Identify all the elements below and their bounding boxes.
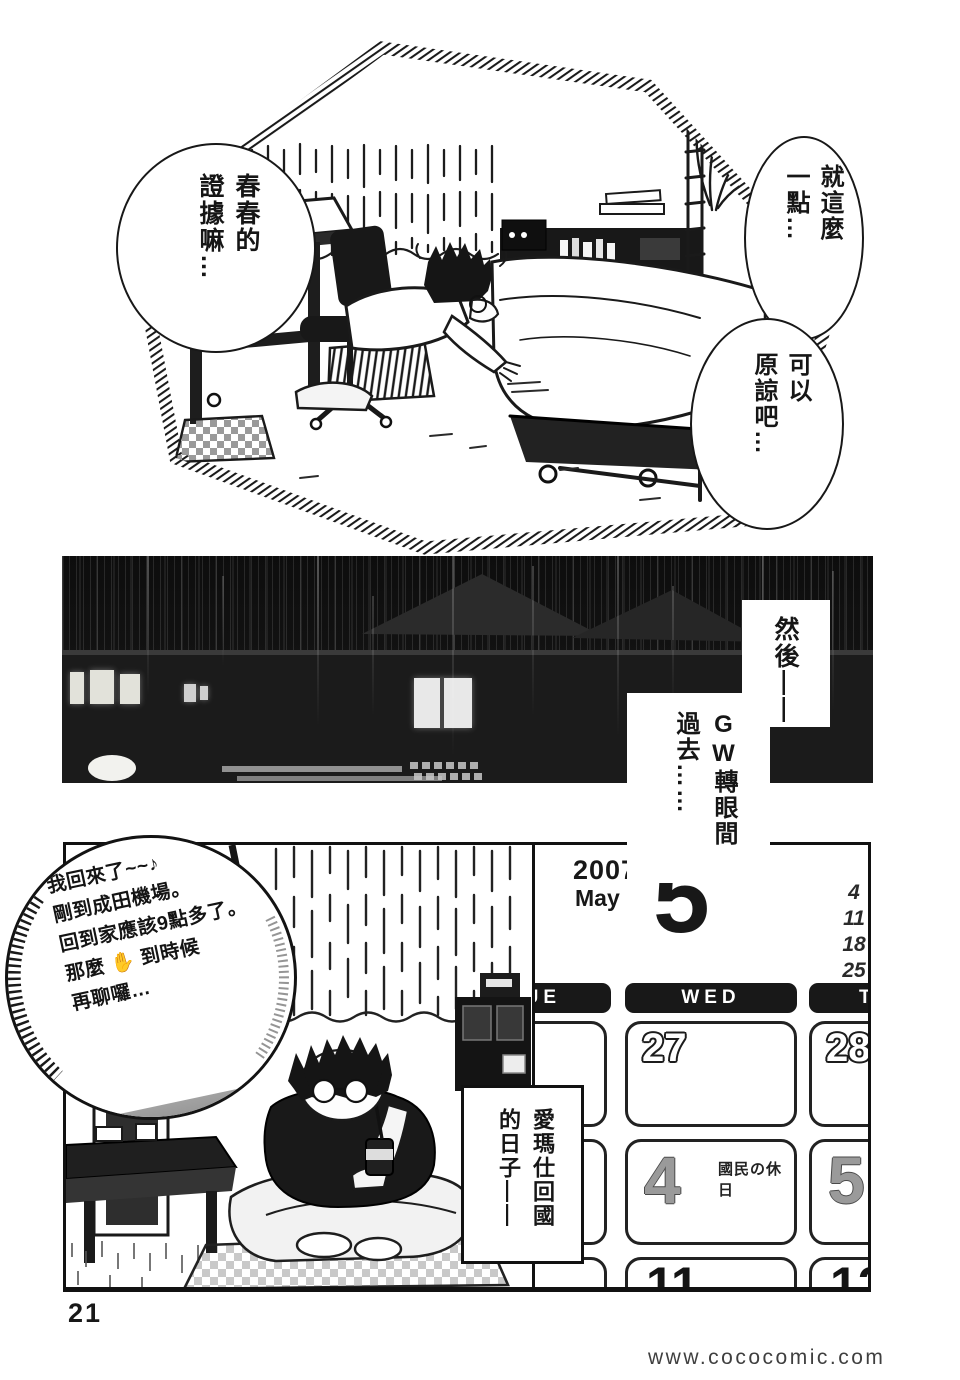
lit-window [90, 670, 114, 704]
watermark: www.cococomic.com [648, 1346, 885, 1370]
rug [175, 416, 274, 462]
stereo-icon [502, 220, 546, 250]
calendar-side-number: 18 [837, 933, 868, 957]
day-number: 11 [646, 1256, 699, 1287]
calendar-cell: 28 [809, 1021, 868, 1127]
caption-hermes-return: 愛瑪仕回國 的日子—— [461, 1085, 584, 1264]
speech-bubble-just-this-much: 就這麼 一點… [744, 136, 864, 340]
page-number: 21 [68, 1298, 102, 1329]
shelf-unit [455, 973, 531, 1091]
low-table [66, 1124, 236, 1263]
caption-text: 愛瑪仕回國 的日子—— [491, 1108, 559, 1228]
day-number: 28 [826, 1026, 868, 1071]
day-number-holiday: 5 [828, 1142, 865, 1218]
phone-message-bubble: 我回來了~~♪ 剛到成田機場。 回到家應該9點多了。 那麼 ✋ 到時候 再聊囉… [5, 835, 297, 1120]
weekday-bar-wed: WED [625, 983, 797, 1013]
day-number-holiday: 4 [644, 1142, 681, 1218]
calendar-cell: 11 [625, 1257, 797, 1287]
day-number: 12 [830, 1256, 868, 1287]
calendar-side-number: 25 [837, 959, 868, 983]
calendar-cell: 5 [809, 1139, 868, 1245]
day-number: 27 [642, 1026, 687, 1071]
weekday-bar-thu: THU [809, 983, 868, 1013]
lit-window [70, 672, 84, 704]
caption-gw-passed: GW轉眼間 過去…… [627, 693, 770, 883]
bubble-text: 就這麼 一點… [778, 164, 846, 242]
calendar-side-number: 11 [837, 907, 868, 931]
lit-window [184, 684, 196, 702]
speech-bubble-forgive: 可以 原諒吧… [690, 318, 844, 530]
manga-page: 春春的 證據嘛… 就這麼 一點… 可以 原諒吧… [0, 0, 960, 1380]
calendar-cell: 12 [809, 1257, 868, 1287]
calendar-cell: 27 [625, 1021, 797, 1127]
calendar-month: May [575, 885, 620, 912]
lit-window [120, 674, 140, 704]
caption-text: 然後—— [770, 616, 800, 724]
calendar-side-number: 4 [837, 881, 868, 905]
caption-gw-prefix: GW [710, 711, 737, 769]
bubble-hatching [8, 838, 297, 1120]
weekday-bar-tue: TUE [532, 983, 611, 1013]
calendar-cell: 4 國民の休日 [625, 1139, 797, 1245]
bubble-text: 春春的 證據嘛… [192, 173, 264, 281]
lit-window-grid [414, 678, 472, 728]
lit-window [200, 686, 208, 700]
bubble-text: 可以 原諒吧… [746, 352, 814, 456]
speech-bubble-evidence: 春春的 證據嘛… [116, 143, 316, 353]
holiday-label: 國民の休日 [718, 1158, 794, 1200]
